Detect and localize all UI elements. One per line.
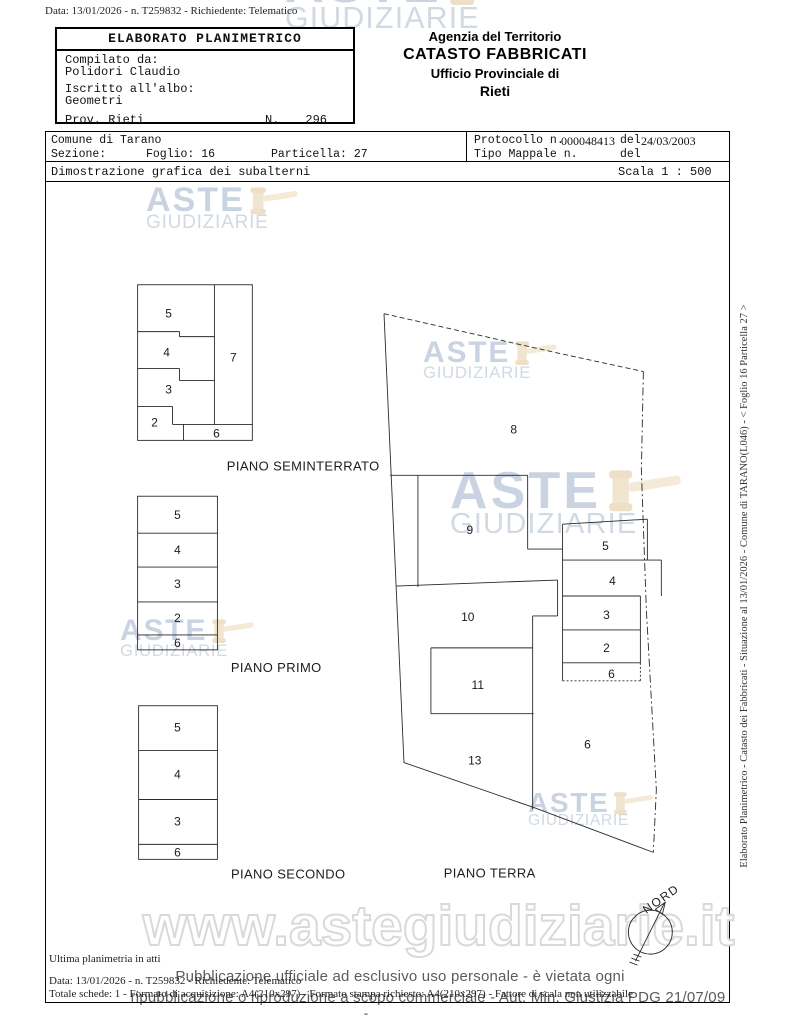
tipo-mappale-label: Tipo Mappale n.: [474, 148, 578, 161]
room-label: 5: [174, 508, 181, 522]
n-value: 296: [305, 114, 327, 126]
floor-plans-svg: 5 4 3 2 7 6 5 4 3 2 6 5 4 3 6 8 9: [46, 182, 729, 1002]
plan-terra: [384, 314, 661, 853]
table-divider: [466, 132, 467, 162]
n-label: N.: [265, 114, 279, 126]
floor-title-seminterrato: PIANO SEMINTERRATO: [227, 458, 380, 473]
room-label: 2: [174, 611, 181, 625]
elaborato-title: ELABORATO PLANIMETRICO: [57, 29, 353, 51]
agency-header: Agenzia del Territorio CATASTO FABBRICAT…: [360, 28, 630, 100]
gavel-icon: [446, 0, 527, 9]
particella-value: Particella: 27: [271, 148, 368, 161]
side-caption: Elaborato Planimetrico - Catasto dei Fab…: [739, 186, 753, 986]
comune-value: Comune di Tarano: [51, 134, 161, 147]
iscritto-value: Geometri: [65, 95, 345, 107]
room-label: 8: [510, 422, 517, 436]
del-label: del: [620, 134, 641, 147]
room-label: 3: [174, 814, 181, 828]
foglio-value: Foglio: 16: [146, 148, 215, 161]
del2-label: del: [620, 148, 641, 161]
drawing-area: 5 4 3 2 7 6 5 4 3 2 6 5 4 3 6 8 9: [46, 182, 729, 1002]
floor-title-terra: PIANO TERRA: [444, 865, 536, 880]
room-label: 6: [608, 667, 615, 681]
floor-title-primo: PIANO PRIMO: [231, 660, 322, 675]
room-label: 5: [174, 721, 181, 735]
agency-line2: CATASTO FABBRICATI: [360, 45, 630, 65]
room-label: 6: [174, 636, 181, 650]
room-label: 3: [165, 382, 172, 396]
room-label: 6: [174, 845, 181, 859]
sezione-label: Sezione:: [51, 148, 106, 161]
protocollo-label: Protocollo n.: [474, 134, 564, 147]
footer-data-line: Data: 13/01/2026 - n. T259832 - Richiede…: [49, 975, 301, 987]
room-label: 4: [609, 574, 616, 588]
room-labels: 5 4 3 2 7 6 5 4 3 2 6 5 4 3 6 8 9: [151, 307, 616, 860]
room-label: 4: [174, 768, 181, 782]
room-label: 6: [213, 426, 220, 440]
agency-line1: Agenzia del Territorio: [360, 28, 630, 45]
room-label: 9: [466, 523, 473, 537]
room-label: 2: [603, 641, 610, 655]
room-label: 3: [603, 608, 610, 622]
room-label: 2: [151, 415, 158, 429]
parcel-info-table: Comune di Tarano Sezione: Foglio: 16 Par…: [46, 132, 729, 162]
ultima-planimetria-note: Ultima planimetria in atti: [49, 953, 161, 965]
room-label: 13: [468, 754, 482, 768]
compilato-value: Polidori Claudio: [65, 66, 345, 78]
room-label: 3: [174, 577, 181, 591]
cadastral-document-page: Pubblicazione ufficiale ad esclusivo uso…: [0, 0, 800, 1035]
elaborato-planimetrico-box: ELABORATO PLANIMETRICO Compilato da: Pol…: [55, 27, 355, 124]
protocollo-value: 000048413: [561, 134, 615, 149]
room-label: 5: [165, 307, 172, 321]
agency-line4: Rieti: [360, 82, 630, 100]
room-label: 10: [461, 610, 475, 624]
document-frame: Comune di Tarano Sezione: Foglio: 16 Par…: [45, 131, 730, 1003]
floor-title-secondo: PIANO SECONDO: [231, 866, 346, 881]
request-data-line: Data: 13/01/2026 - n. T259832 - Richiede…: [45, 5, 297, 17]
room-label: 6: [584, 738, 591, 752]
dimostrazione-row: Dimostrazione grafica dei subalterni Sca…: [46, 162, 729, 182]
room-label: 4: [163, 346, 170, 360]
agency-line3: Ufficio Provinciale di: [360, 65, 630, 82]
room-label: 4: [174, 543, 181, 557]
room-label: 11: [472, 678, 485, 692]
room-label: 5: [602, 539, 609, 553]
dimostrazione-label: Dimostrazione grafica dei subalterni: [51, 165, 310, 179]
floor-titles: PIANO SEMINTERRATO PIANO PRIMO PIANO SEC…: [227, 458, 536, 881]
del-date-value: 24/03/2003: [641, 134, 696, 149]
footer-totale-line: Totale schede: 1 - Formato di acquisizio…: [49, 988, 633, 1000]
watermark-text: ASTE: [285, 0, 442, 6]
page-number-dash: -: [364, 1006, 368, 1021]
room-label: 7: [230, 351, 237, 365]
prov-label: Prov. Rieti: [65, 114, 144, 126]
scala-value: Scala 1 : 500: [618, 165, 712, 179]
